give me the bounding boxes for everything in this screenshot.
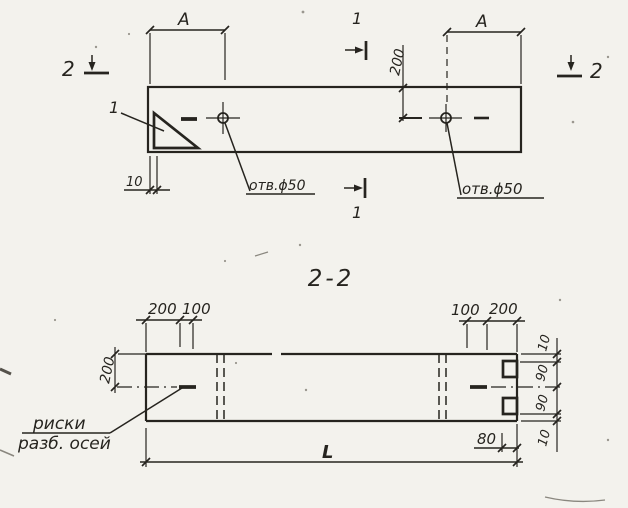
plan-beam-outline (148, 87, 521, 152)
dim-top-right: 100 200 (451, 300, 525, 352)
view-arrowhead (354, 185, 363, 192)
section-marker-1-top: 1 (345, 9, 366, 60)
section-1-label: 1 (352, 9, 362, 28)
dim-80-text: 80 (477, 430, 496, 448)
dim-100-text: 100 (182, 300, 211, 318)
note-line1: риски (32, 414, 86, 434)
plan-view: 1 A (62, 9, 603, 222)
technical-drawing: 1 A (0, 0, 628, 508)
notch-upper (503, 361, 517, 377)
leader-line (447, 123, 461, 195)
edge-smudge (0, 369, 11, 374)
paper-speck (224, 260, 226, 262)
view-arrowhead (568, 62, 575, 71)
dim-200-section: 200 (97, 347, 146, 393)
hole-right (399, 104, 489, 132)
paper-speck (607, 439, 609, 441)
paper-speck (128, 33, 130, 35)
stray-mark (255, 252, 268, 256)
paper-speck (54, 319, 56, 321)
notch-lower (503, 398, 517, 414)
dim-10-text: 10 (126, 175, 143, 190)
paper-speck (95, 46, 97, 48)
paper-speck (607, 56, 609, 58)
note-line2: разб. осей (17, 434, 111, 454)
hole-callout-right: отв.ϕ50 (447, 123, 544, 198)
paper-speck (299, 244, 301, 246)
view-arrowhead (355, 47, 364, 54)
hole-label-left: отв.ϕ50 (249, 178, 306, 194)
section-title: 2-2 (308, 266, 355, 292)
dim-a-left-text: A (177, 10, 190, 30)
section-2-label: 2 (62, 57, 75, 81)
stray-mark (0, 450, 14, 456)
dim-80: 80 (474, 430, 521, 452)
paper-speck (572, 121, 575, 124)
dim-100-text: 100 (451, 301, 480, 319)
dim-200-text: 200 (148, 300, 177, 318)
detail-label: 1 (109, 98, 119, 117)
section-marker-1-bottom: 1 (344, 178, 365, 222)
section-marker-2-left: 2 (62, 55, 109, 81)
dim-200-plan: 200 (387, 45, 408, 122)
leader-line (225, 123, 250, 191)
hole-callout-left: отв.ϕ50 (225, 123, 315, 194)
dim-a-right: A (443, 12, 525, 104)
dim-90-bottom-text: 90 (533, 393, 552, 413)
dim-length: L (140, 424, 523, 467)
dim-200-text: 200 (489, 300, 518, 318)
dim-90-top-text: 90 (533, 363, 552, 383)
hole-label-right: отв.ϕ50 (462, 180, 523, 198)
section-marker-2-right: 2 (557, 55, 603, 83)
dim-right-chain: 10 90 90 10 (520, 333, 561, 452)
stray-mark (545, 497, 605, 501)
dim-a-right-text: A (475, 12, 488, 32)
paper-speck (305, 389, 307, 391)
view-arrowhead (89, 62, 96, 71)
blueprint-page: 1 A (0, 0, 628, 508)
dim-10-top-text: 10 (535, 333, 554, 353)
section-view: 2-2 200 (17, 266, 561, 467)
dim-top-left: 200 100 (136, 300, 211, 352)
dim-10-plan: 10 (124, 156, 170, 194)
dim-10-bottom-text: 10 (535, 428, 554, 448)
section-2-label: 2 (590, 59, 603, 83)
dim-a-left: A (146, 10, 229, 84)
paper-speck (559, 299, 561, 301)
section-1-label: 1 (352, 203, 362, 222)
paper-speck (235, 362, 237, 364)
dim-200-text: 200 (387, 47, 408, 77)
scan-artifacts (0, 11, 609, 502)
dim-length-text: L (322, 442, 333, 463)
hole-left (181, 102, 240, 134)
paper-speck (302, 11, 305, 14)
